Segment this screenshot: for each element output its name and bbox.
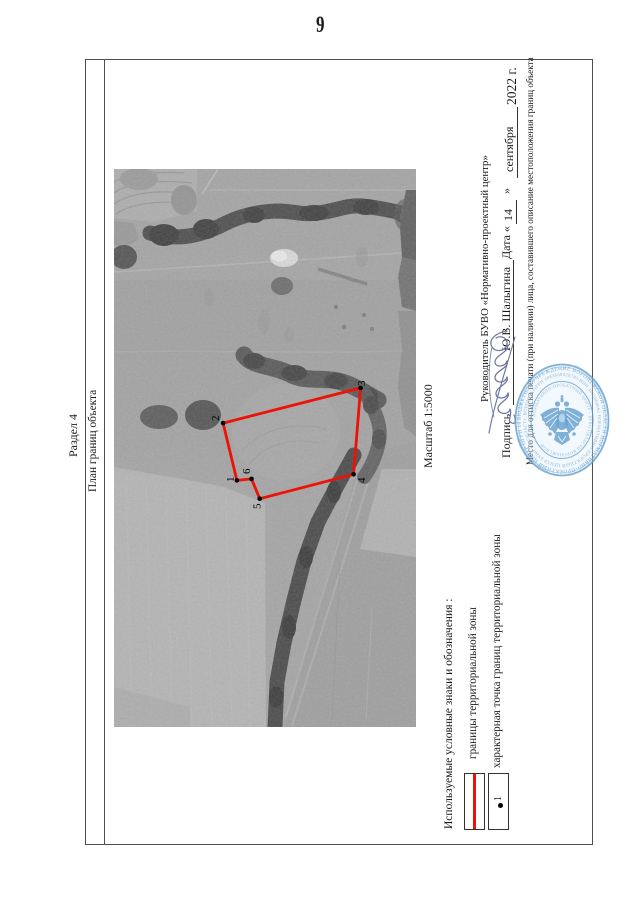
svg-text:2: 2 [210,416,222,422]
svg-text:1: 1 [225,477,237,483]
svg-text:4: 4 [356,477,368,483]
svg-text:5: 5 [251,503,263,509]
svg-text:3: 3 [356,380,368,386]
svg-text:6: 6 [241,468,253,474]
